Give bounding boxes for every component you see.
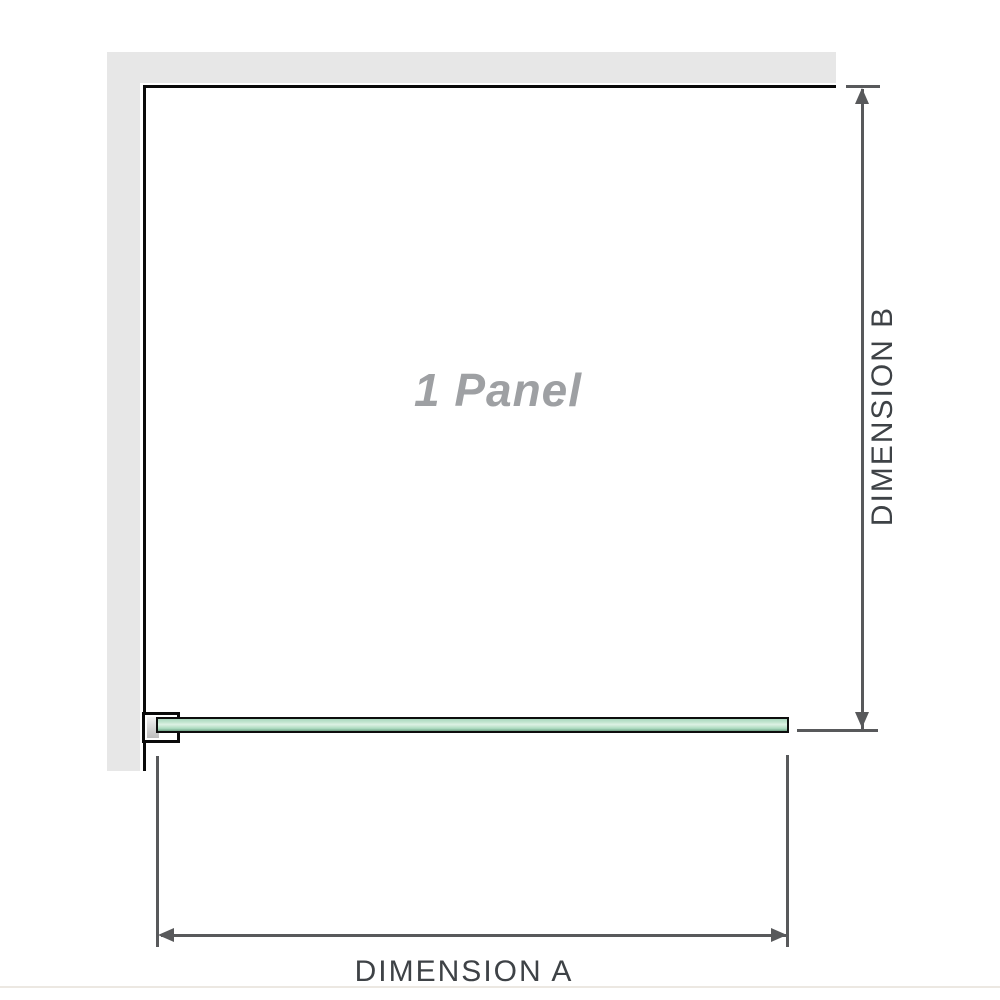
dimension-a-extension-left: [156, 756, 159, 947]
glass-panel-bar: [156, 717, 789, 733]
dimension-b-label: DIMENSION B: [868, 291, 898, 541]
dimension-a-arrowhead-left: [158, 928, 174, 942]
dimension-a-extension-right: [786, 755, 789, 947]
dimension-b-line: [861, 89, 864, 729]
wall-left: [107, 52, 140, 771]
shower-panel-dimension-diagram: 1 Panel DIMENSION B DIMENSION A: [0, 0, 1000, 1000]
dimension-a-line: [161, 934, 786, 937]
dimension-a-label: DIMENSION A: [314, 956, 614, 988]
dimension-b-arrowhead-bottom: [855, 712, 869, 728]
panel-outline-left: [143, 85, 146, 771]
dimension-b-tick-bottom: [797, 729, 878, 732]
panel-outline-top: [143, 85, 836, 88]
panel-count-label: 1 Panel: [348, 360, 648, 420]
dimension-b-arrowhead-top: [855, 88, 869, 104]
image-baseline: [0, 986, 1000, 988]
wall-top: [107, 52, 836, 83]
dimension-a-arrowhead-right: [771, 928, 787, 942]
